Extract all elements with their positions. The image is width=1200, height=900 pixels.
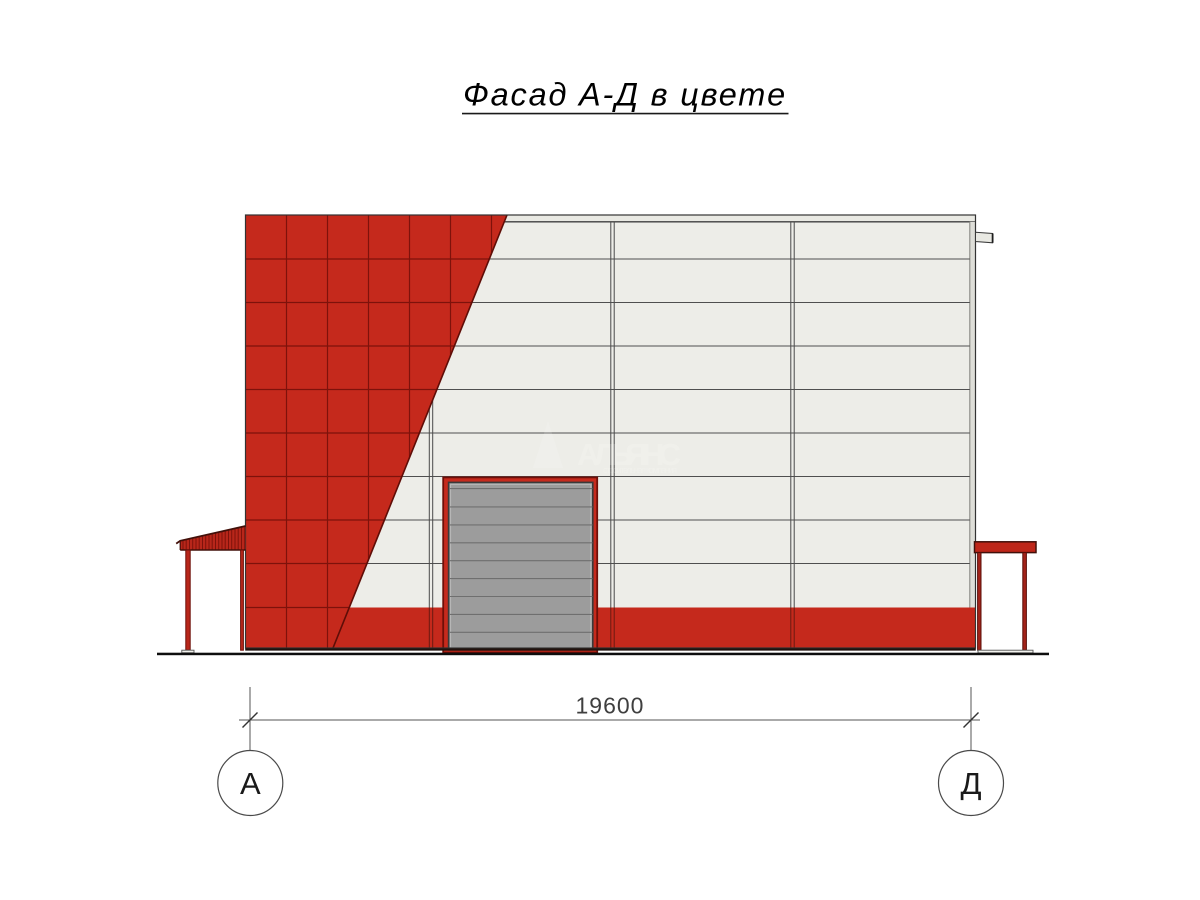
svg-text:Фасад А-Д в цвете: Фасад А-Д в цвете	[463, 77, 787, 113]
svg-text:А: А	[240, 766, 261, 801]
svg-text:Д: Д	[961, 766, 982, 801]
svg-text:19600: 19600	[576, 693, 645, 719]
svg-text:строительная компания: строительная компания	[603, 465, 677, 475]
